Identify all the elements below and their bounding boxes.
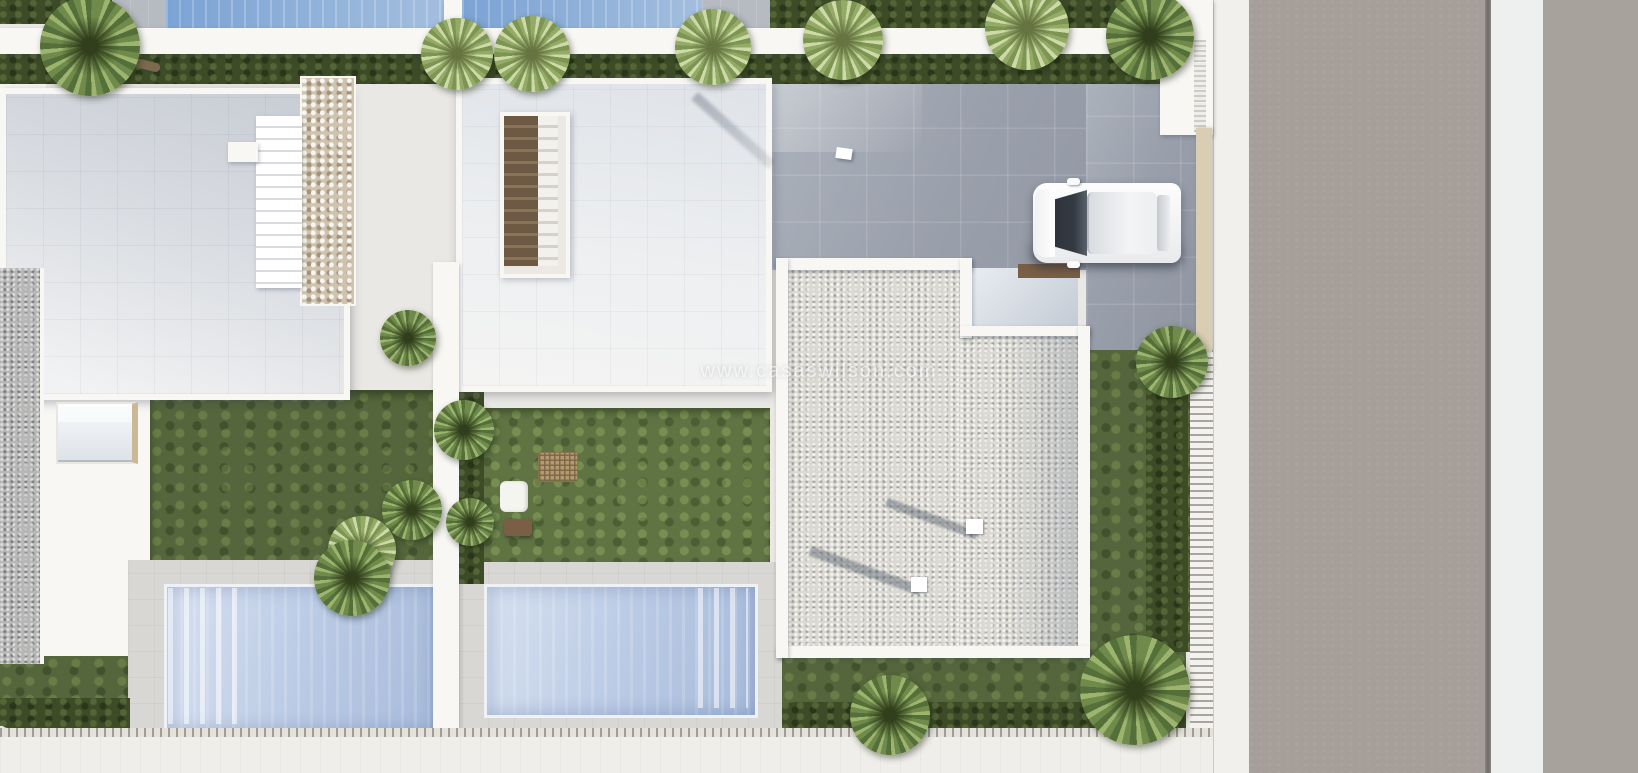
side-table [504,519,532,536]
roller-gate [1194,40,1206,132]
stairwell-middle [500,112,570,278]
pergola-table [538,452,578,482]
staircase-left [256,116,302,288]
palm-bush [494,16,570,92]
lounger-cushion [500,481,528,512]
parapet-right [1078,326,1090,658]
driveway-highlight [772,82,922,152]
boundary-wood-wall [1196,128,1212,352]
car-hood [1035,189,1055,257]
side-gravel-strip [0,268,44,664]
white-steps [538,116,558,266]
chimney-block [911,577,927,592]
watermark: www.casaswilson.com [701,360,938,383]
stone-feature-wall [300,76,356,306]
stair-landing [228,142,258,162]
car-roof [1087,192,1157,254]
car-mirror [1067,261,1080,268]
road-lane-right [1543,0,1638,773]
palm-bush [421,18,493,90]
palm-bush [434,400,494,460]
gravel-roof-right [788,268,962,648]
parapet-top [776,258,972,270]
palm-tree [314,540,390,616]
corner-bushes [0,698,130,728]
pool-steps-left [168,588,238,724]
skylight [56,402,138,464]
parapet-step-h [960,326,1090,336]
aerial-render: www.casaswilson.com [0,0,1638,773]
sidewalk-bottom [0,728,1213,773]
wood-steps [504,116,538,266]
palm-tree [850,675,930,755]
road-median [1491,0,1543,773]
car-windshield [1055,190,1087,256]
gravel-shade [1004,334,1080,648]
boundary-fence [1190,350,1213,734]
palm-tree [1136,326,1208,398]
palm-tree [1080,635,1190,745]
palm-tree [40,0,140,96]
pool-steps-middle [698,588,748,708]
road-lane-left [1249,0,1485,773]
parapet-bottom [776,646,1090,658]
sidewalk-right [1213,0,1250,773]
hedge-right-side [1146,388,1188,652]
palm-bush [446,498,494,546]
roof-vent [835,147,852,160]
palm-bush [675,9,751,85]
sidewalk-curb-hatch [0,728,1213,737]
palm-bush [803,0,883,80]
palm-bush [382,480,442,540]
parapet-left [776,258,788,658]
chimney-block [966,519,983,534]
car-mirror [1067,178,1080,185]
palm-bush [380,310,436,366]
car-rear-window [1157,195,1170,251]
white-car [1033,183,1181,263]
